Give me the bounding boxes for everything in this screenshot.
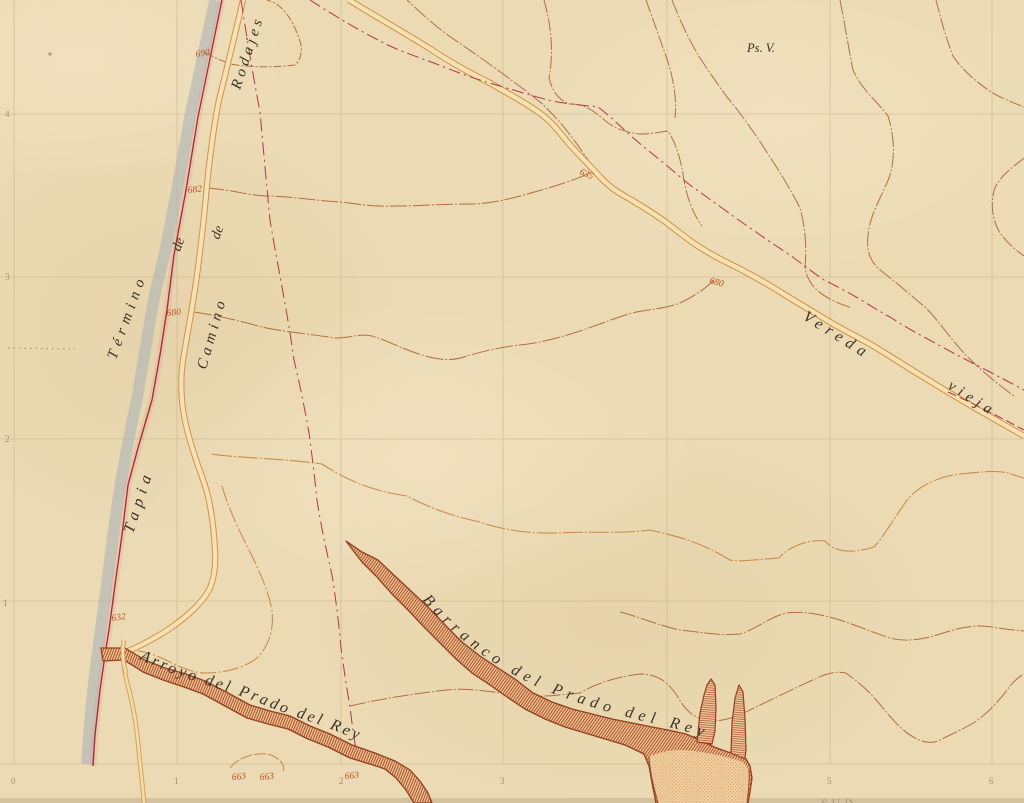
svg-text:680: 680: [166, 308, 181, 319]
svg-text:2: 2: [339, 776, 344, 786]
svg-text:632: 632: [111, 612, 127, 624]
svg-text:SUD: SUD: [821, 796, 857, 803]
svg-text:682: 682: [187, 185, 202, 196]
svg-text:2: 2: [5, 434, 10, 444]
svg-text:663: 663: [259, 772, 274, 783]
svg-text:1: 1: [174, 776, 179, 786]
svg-text:690: 690: [195, 48, 211, 60]
svg-text:663: 663: [344, 771, 359, 782]
svg-text:3: 3: [500, 776, 505, 786]
svg-text:4: 4: [5, 109, 10, 119]
svg-text:6: 6: [989, 776, 994, 786]
svg-text:1: 1: [3, 598, 8, 608]
svg-text:0: 0: [11, 776, 16, 786]
svg-text:3: 3: [5, 272, 10, 282]
svg-text:5: 5: [827, 776, 832, 786]
svg-text:Ps. V.: Ps. V.: [746, 41, 775, 55]
svg-text:663: 663: [231, 772, 246, 783]
